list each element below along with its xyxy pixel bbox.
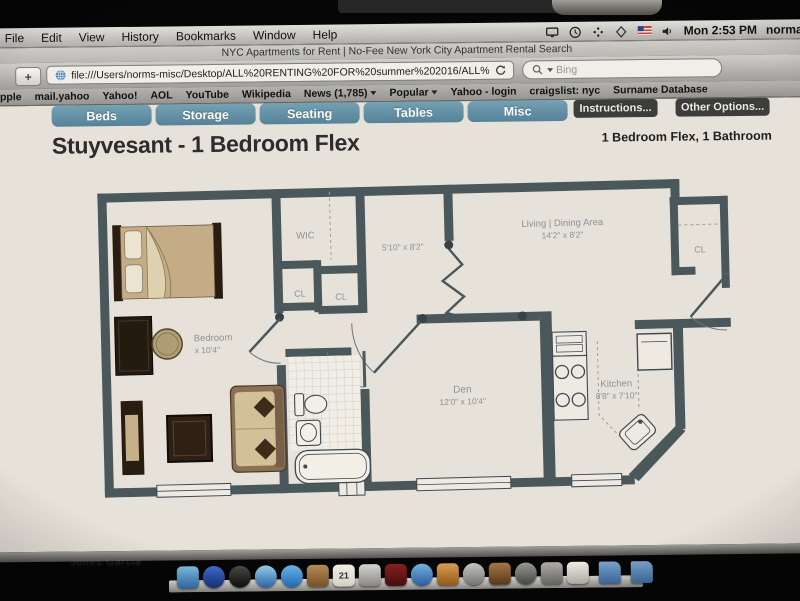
photos-icon[interactable] (359, 564, 381, 586)
bookmark-apple[interactable]: Apple (0, 91, 22, 103)
bookmark-mail-yahoo[interactable]: mail.yahoo (35, 90, 90, 103)
desktop-faint-label: Jones Garcia (71, 557, 142, 569)
new-tab-button[interactable]: + (15, 67, 41, 86)
cl-label: CL (335, 291, 347, 301)
dropdown-caret-icon (432, 90, 438, 94)
clock-icon[interactable] (569, 25, 583, 39)
finder-icon[interactable] (177, 566, 199, 588)
address-book-icon[interactable] (307, 565, 329, 587)
menu-view[interactable]: View (79, 30, 105, 44)
bookmark-popular-folder[interactable]: Popular (389, 86, 437, 99)
itunes-icon[interactable] (411, 564, 433, 586)
other-options-button[interactable]: Other Options... (675, 98, 769, 117)
display-icon[interactable] (546, 25, 560, 39)
floor-plan: WIC CL CL CL 5'10" x 8'2" Living | Dinin… (91, 168, 744, 518)
category-button-storage[interactable]: Storage (155, 103, 255, 125)
bookmark-yahoo[interactable]: Yahoo! (102, 90, 137, 102)
den-label: Den (453, 384, 472, 395)
living-dining-dims: 14'2" x 8'2" (541, 229, 583, 240)
documents-folder-icon[interactable] (599, 561, 621, 583)
dropdown-caret-icon (370, 91, 376, 95)
category-button-tables[interactable]: Tables (363, 101, 463, 123)
bookmark-craigslist[interactable]: craigslist: nyc (529, 85, 600, 98)
spotlight-icon[interactable] (615, 24, 629, 38)
globe-favicon (53, 68, 67, 82)
ical-icon[interactable]: 21 (333, 564, 355, 586)
quicktime-icon[interactable] (463, 563, 485, 585)
page-content: Beds Storage Seating Tables Misc Instruc… (0, 97, 800, 552)
dock: 21 (169, 555, 643, 592)
menu-bookmarks[interactable]: Bookmarks (176, 28, 236, 43)
fast-user-switch-label[interactable]: norma (766, 22, 800, 36)
living-dining-label: Living | Dining Area (521, 217, 604, 230)
den-dims: 12'0" x 10'4" (439, 396, 486, 407)
reload-icon[interactable] (493, 63, 507, 77)
bathroom-fixtures (288, 355, 371, 484)
screen: File Edit View History Bookmarks Window … (0, 19, 800, 600)
menu-help[interactable]: Help (313, 27, 338, 41)
bookmark-youtube[interactable]: YouTube (186, 89, 229, 101)
bookmark-yahoo-login[interactable]: Yahoo - login (451, 86, 517, 99)
category-button-misc[interactable]: Misc (467, 100, 567, 122)
hall-dims-label: 5'10" x 8'2" (382, 241, 424, 252)
menu-edit[interactable]: Edit (41, 30, 62, 44)
photo-booth-icon[interactable] (437, 563, 459, 585)
floor-plan-image: WIC CL CL CL 5'10" x 8'2" Living | Dinin… (91, 168, 744, 518)
bookmark-wikipedia[interactable]: Wikipedia (242, 88, 291, 101)
apartment-summary: 1 Bedroom Flex, 1 Bathroom (602, 129, 772, 145)
cl-label: CL (294, 288, 306, 298)
volume-icon[interactable] (661, 24, 675, 38)
safari-icon[interactable] (255, 565, 277, 587)
loveseat (230, 385, 286, 472)
bed (112, 223, 223, 302)
universal-access-icon[interactable] (592, 25, 606, 39)
downloads-folder-icon[interactable] (631, 561, 653, 583)
system-preferences-icon[interactable] (541, 562, 563, 584)
category-button-beds[interactable]: Beds (52, 105, 152, 127)
search-placeholder: Bing (556, 63, 577, 75)
category-button-seating[interactable]: Seating (259, 102, 359, 124)
bedroom-label: Bedroom (194, 332, 233, 344)
ichat-icon[interactable] (281, 565, 303, 587)
kitchen-dims: 8'8" x 7'10" (596, 390, 638, 401)
menu-clock[interactable]: Mon 2:53 PM (684, 23, 757, 38)
search-field[interactable]: Bing (523, 59, 721, 78)
kitchen-label: Kitchen (600, 378, 632, 390)
bedroom-dims: x 10'4" (194, 345, 220, 356)
input-language-flag-icon[interactable] (638, 24, 652, 38)
bookmark-surname-database[interactable]: Surname Database (613, 83, 708, 96)
address-bar[interactable]: file:///Users/norms-misc/Desktop/ALL%20R… (47, 62, 513, 84)
search-engine-caret-icon (547, 68, 553, 72)
page-title: Stuyvesant - 1 Bedroom Flex (52, 129, 360, 159)
dashboard-icon[interactable] (229, 566, 251, 588)
menu-window[interactable]: Window (253, 28, 296, 42)
camera-icon[interactable] (515, 562, 537, 584)
bookmark-aol[interactable]: AOL (150, 89, 172, 101)
app-store-icon[interactable] (203, 566, 225, 588)
url-text: file:///Users/norms-misc/Desktop/ALL%20R… (71, 64, 489, 81)
search-icon (530, 63, 544, 77)
wic-label: WIC (296, 230, 315, 241)
textedit-icon[interactable] (567, 562, 589, 584)
bookmark-news-folder[interactable]: News (1,785) (304, 87, 377, 100)
garageband-icon[interactable] (489, 563, 511, 585)
cl-label: CL (694, 244, 706, 254)
instructions-button[interactable]: Instructions... (573, 99, 657, 118)
menu-file[interactable]: File (5, 31, 25, 45)
photo-background-object (552, 0, 662, 15)
menu-history[interactable]: History (121, 29, 159, 43)
front-row-icon[interactable] (385, 564, 407, 586)
